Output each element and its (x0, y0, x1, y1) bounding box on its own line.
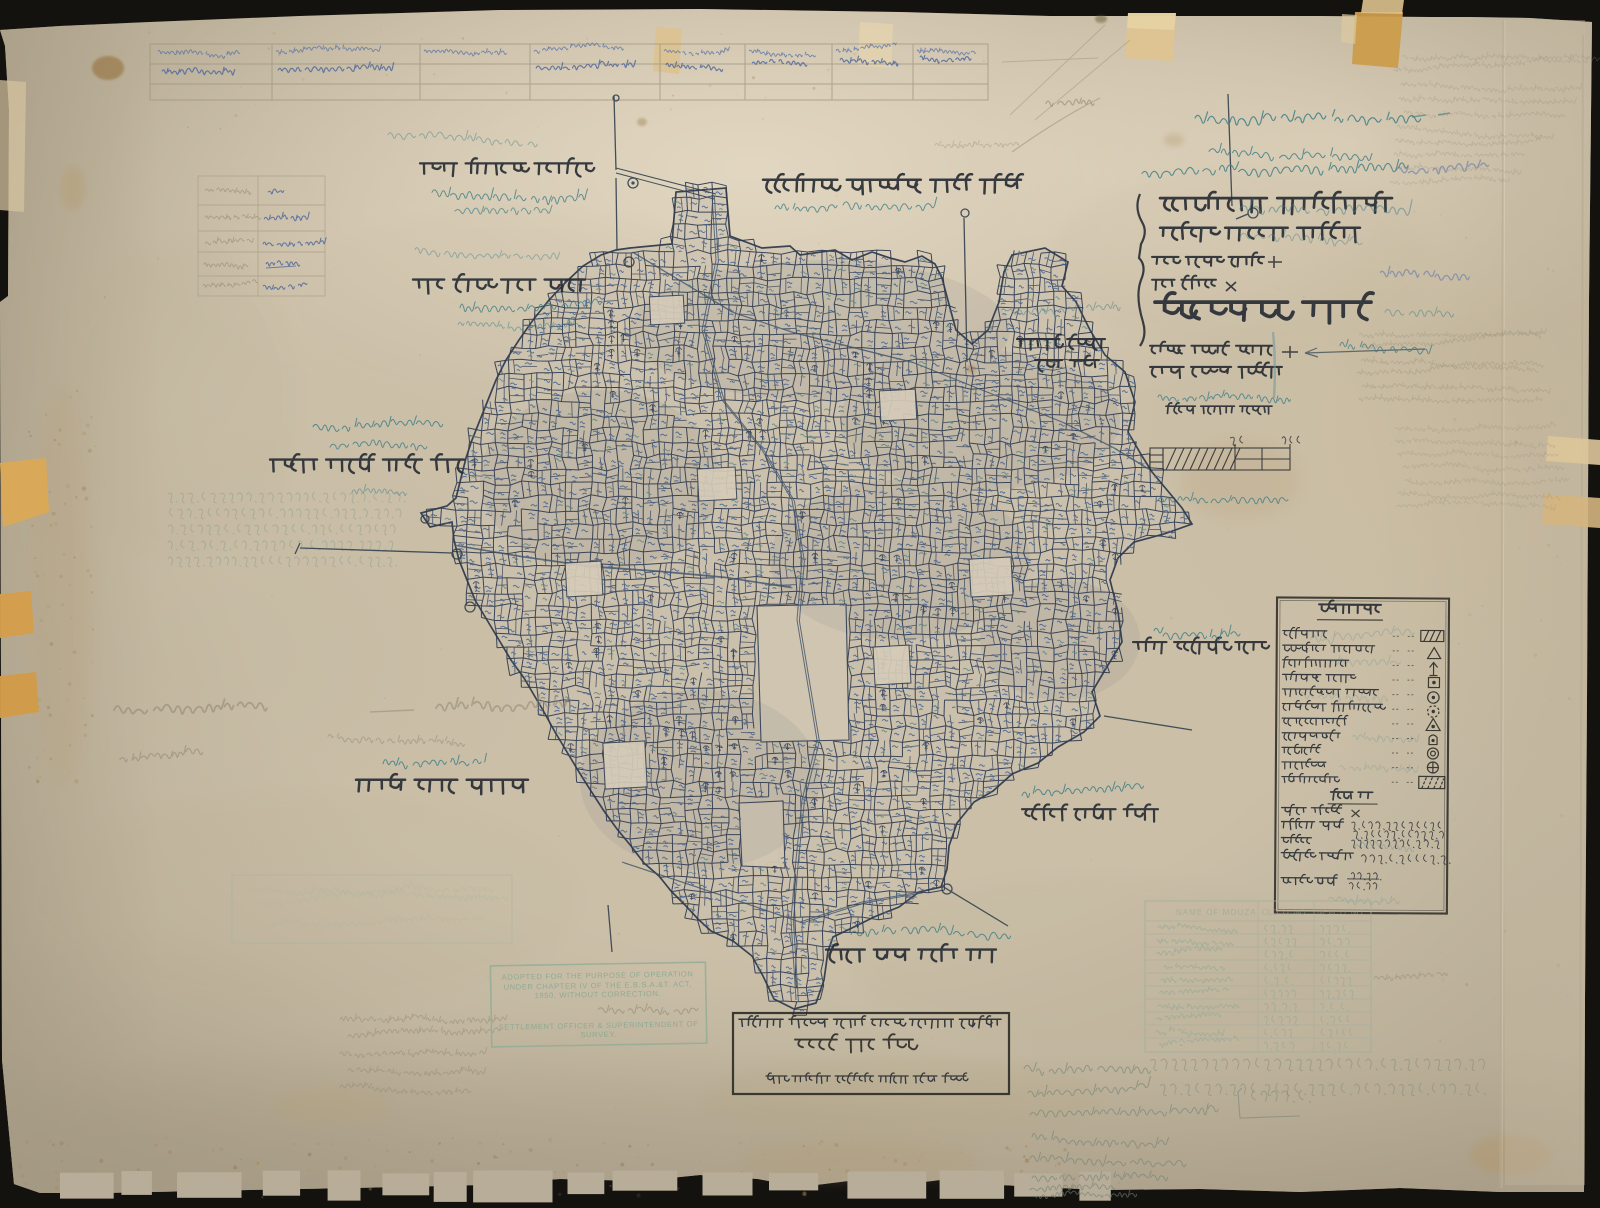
svg-text:OLD J.L.NO: OLD J.L.NO (1262, 908, 1306, 917)
svg-text:NAME OF MOUZA: NAME OF MOUZA (1176, 908, 1257, 917)
svg-text:1950, WITHOUT CORRECTION.: 1950, WITHOUT CORRECTION. (534, 989, 661, 1000)
svg-text:NEW J.L.NO: NEW J.L.NO (1317, 908, 1363, 917)
svg-text:SURVEY.: SURVEY. (580, 1030, 617, 1040)
